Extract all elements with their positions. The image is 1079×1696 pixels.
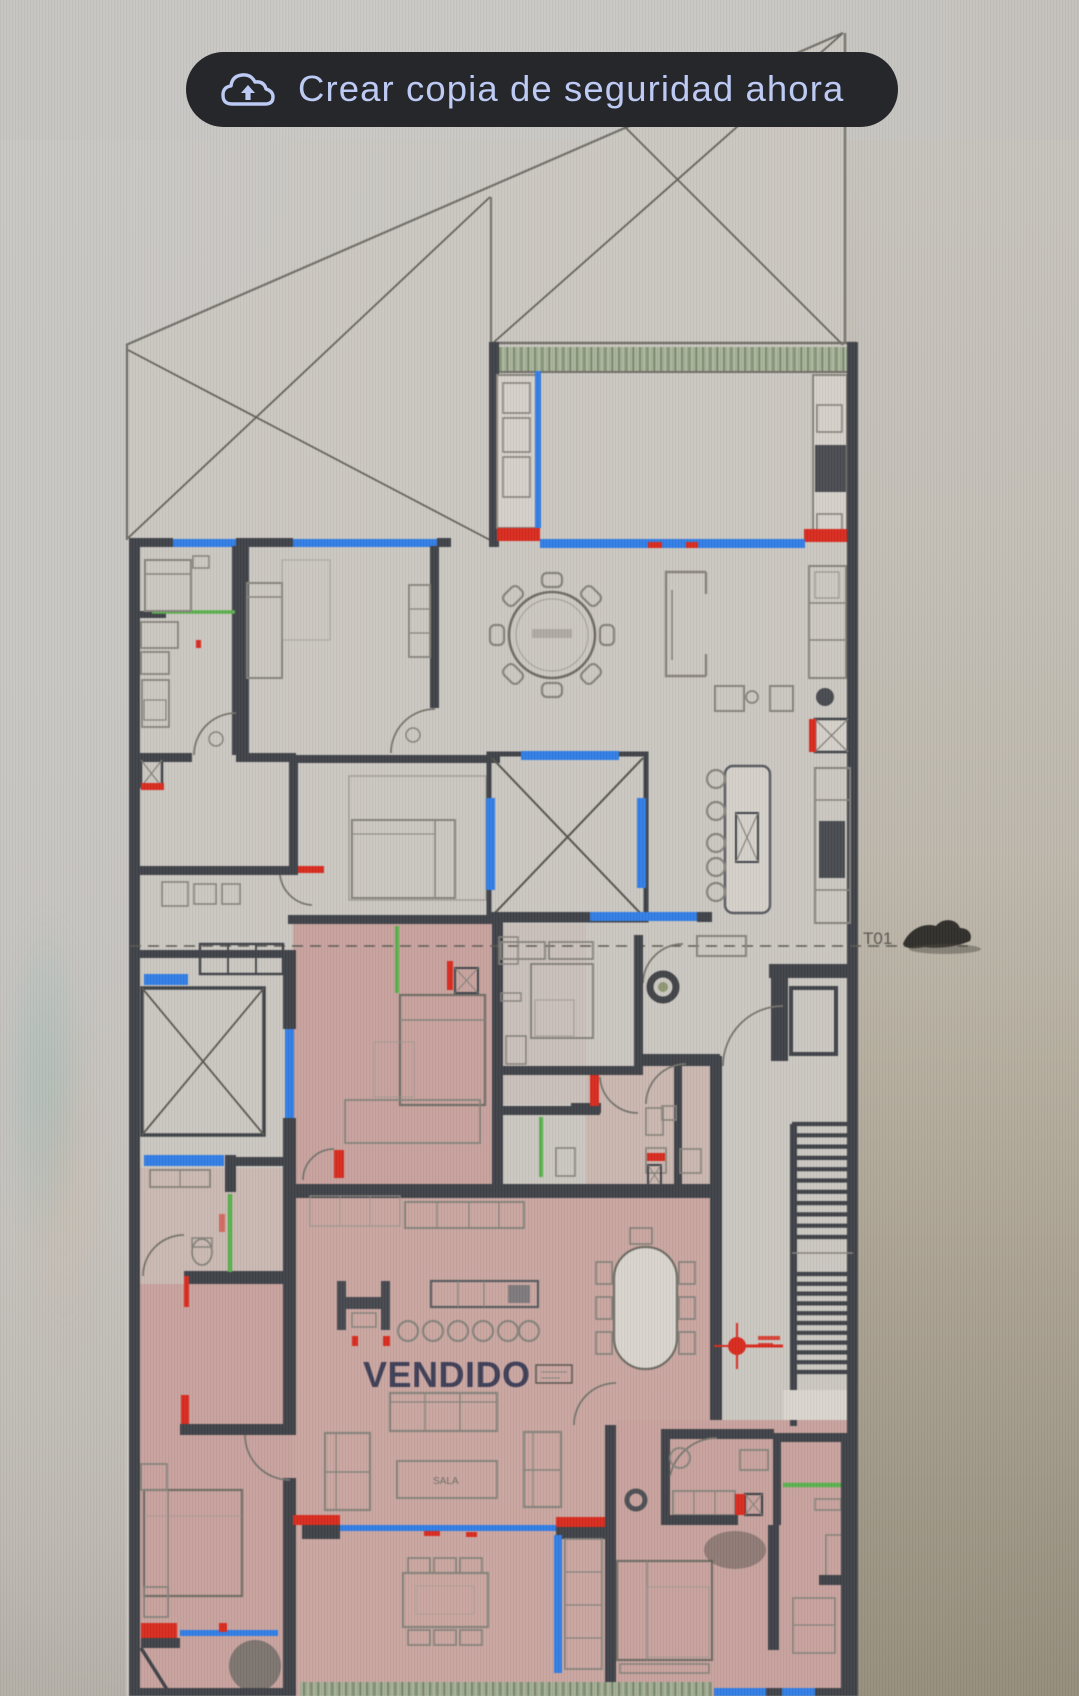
- svg-text:VENDIDO: VENDIDO: [363, 1354, 531, 1395]
- svg-text:T01: T01: [863, 929, 892, 948]
- svg-text:SALA: SALA: [433, 1476, 459, 1487]
